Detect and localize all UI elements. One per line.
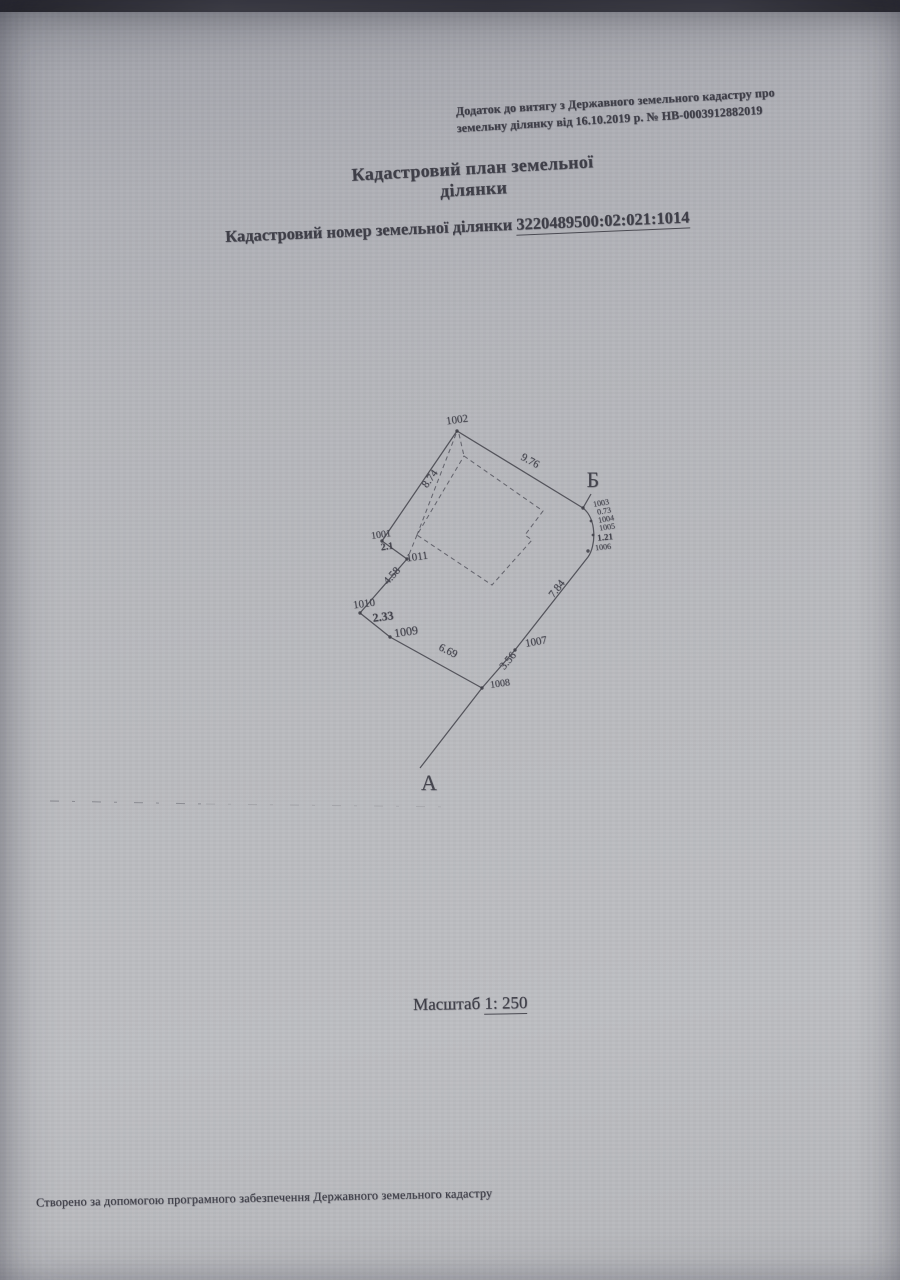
scanned-document-page: Додаток до витягу з Державного земельног… <box>0 0 900 1280</box>
road-axis-line-a-b <box>420 494 594 768</box>
fold-artifact-line-faint <box>206 804 455 807</box>
plan-label: 2.33 <box>372 608 395 626</box>
plan-label: 2.1 <box>380 541 394 554</box>
scale-label: Масштаб <box>413 994 480 1014</box>
plan-label: 1006 <box>595 542 612 553</box>
scale-line: Масштаб 1: 250 <box>413 993 528 1015</box>
scale-value: 1: 250 <box>484 993 527 1015</box>
plan-label: 1.21 <box>597 531 614 543</box>
plan-label: А <box>421 770 437 796</box>
fold-artifact-line <box>50 801 206 804</box>
plan-label: Б <box>587 467 600 493</box>
cadastral-plan-drawing <box>0 0 900 1280</box>
parcel-boundary <box>360 431 583 688</box>
building-extension-dashed <box>408 434 464 557</box>
boundary-points <box>358 429 594 689</box>
